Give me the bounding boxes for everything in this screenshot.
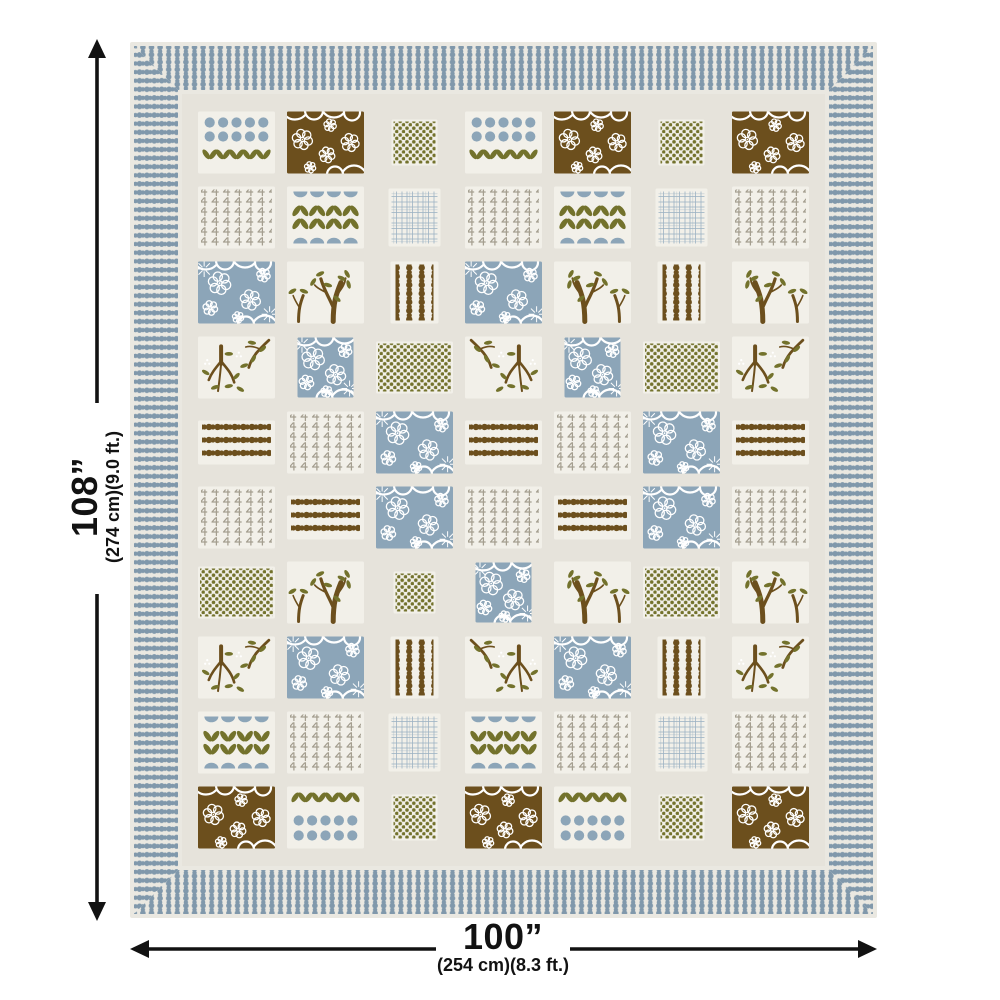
quilt-patch-sp bbox=[732, 712, 809, 774]
quilt-patch-br bbox=[465, 637, 542, 699]
quilt-patch-tr bbox=[287, 262, 364, 324]
quilt-patch-tr bbox=[287, 562, 364, 624]
quilt-patch-sp bbox=[465, 187, 542, 249]
quilt-patch-sp bbox=[287, 412, 364, 474]
quilt-patch-ch bbox=[656, 714, 708, 772]
quilt-patch-hm bbox=[554, 187, 631, 249]
quilt-patch-odw bbox=[643, 567, 720, 619]
quilt-patch-od bbox=[659, 120, 705, 166]
quilt-patch-br bbox=[732, 337, 809, 399]
quilt-patch-brr bbox=[287, 496, 364, 540]
quilt-patch-sp bbox=[198, 487, 275, 549]
height-arrowhead-bottom bbox=[88, 902, 106, 921]
quilt-patch-sp bbox=[465, 487, 542, 549]
page: 108” (274 cm)(9.0 ft.) 100” (254 cm)(8.3… bbox=[0, 0, 1000, 1000]
quilt-patch-sp bbox=[732, 187, 809, 249]
quilt-patch-brr bbox=[198, 421, 275, 465]
quilt-patch-sp bbox=[198, 187, 275, 249]
height-dimension-label: 108” (274 cm)(9.0 ft.) bbox=[67, 431, 125, 563]
quilt-patch-dt bbox=[465, 112, 542, 174]
quilt-patch-br bbox=[465, 337, 542, 399]
quilt-patch-tr bbox=[732, 262, 809, 324]
quilt-patch-odw bbox=[198, 567, 275, 619]
quilt-patch-ch bbox=[656, 189, 708, 247]
width-arrowhead-left bbox=[130, 940, 149, 958]
width-dimension-label: 100” (254 cm)(8.3 ft.) bbox=[437, 919, 569, 977]
quilt-patch-brr bbox=[732, 421, 809, 465]
quilt-patch-bc bbox=[658, 262, 706, 324]
height-value: 108” bbox=[67, 431, 103, 563]
quilt-patch-brr bbox=[554, 496, 631, 540]
quilt-patch-od bbox=[392, 120, 438, 166]
width-value: 100” bbox=[437, 919, 569, 955]
quilt-patch-sp bbox=[732, 487, 809, 549]
quilt-patch-sp bbox=[554, 712, 631, 774]
quilt-patch-sp bbox=[287, 712, 364, 774]
quilt-patch-odw bbox=[376, 342, 453, 394]
quilt-patch-hm2 bbox=[198, 712, 275, 774]
height-metric: (274 cm)(9.0 ft.) bbox=[103, 431, 125, 563]
width-metric: (254 cm)(8.3 ft.) bbox=[437, 955, 569, 977]
quilt-patch-br bbox=[732, 637, 809, 699]
quilt-patch-hm2 bbox=[465, 712, 542, 774]
quilt-patch-bc bbox=[658, 637, 706, 699]
quilt-patch-bc bbox=[391, 262, 439, 324]
quilt-patch-td bbox=[287, 787, 364, 849]
quilt-patch-tr bbox=[732, 562, 809, 624]
quilt-patch-sp bbox=[554, 412, 631, 474]
quilt-patch-br bbox=[198, 337, 275, 399]
quilt-patch-ch bbox=[389, 714, 441, 772]
width-arrowhead-right bbox=[858, 940, 877, 958]
quilt-image bbox=[130, 42, 877, 918]
quilt-patch-ch bbox=[389, 189, 441, 247]
quilt-patch-odw bbox=[643, 342, 720, 394]
quilt-patch-bc bbox=[391, 637, 439, 699]
quilt-patch-dt bbox=[198, 112, 275, 174]
quilt-patch-tr bbox=[554, 562, 631, 624]
quilt-patch-td bbox=[554, 787, 631, 849]
quilt-patch-hm bbox=[287, 187, 364, 249]
quilt-patch-br bbox=[198, 637, 275, 699]
quilt-patch-brr bbox=[465, 421, 542, 465]
height-arrowhead-top bbox=[88, 39, 106, 58]
quilt-patch-tr bbox=[554, 262, 631, 324]
quilt-patch-od bbox=[659, 795, 705, 841]
quilt-patch-od bbox=[392, 795, 438, 841]
quilt-patch-ods bbox=[394, 572, 436, 614]
quilt-graphic bbox=[130, 42, 877, 918]
